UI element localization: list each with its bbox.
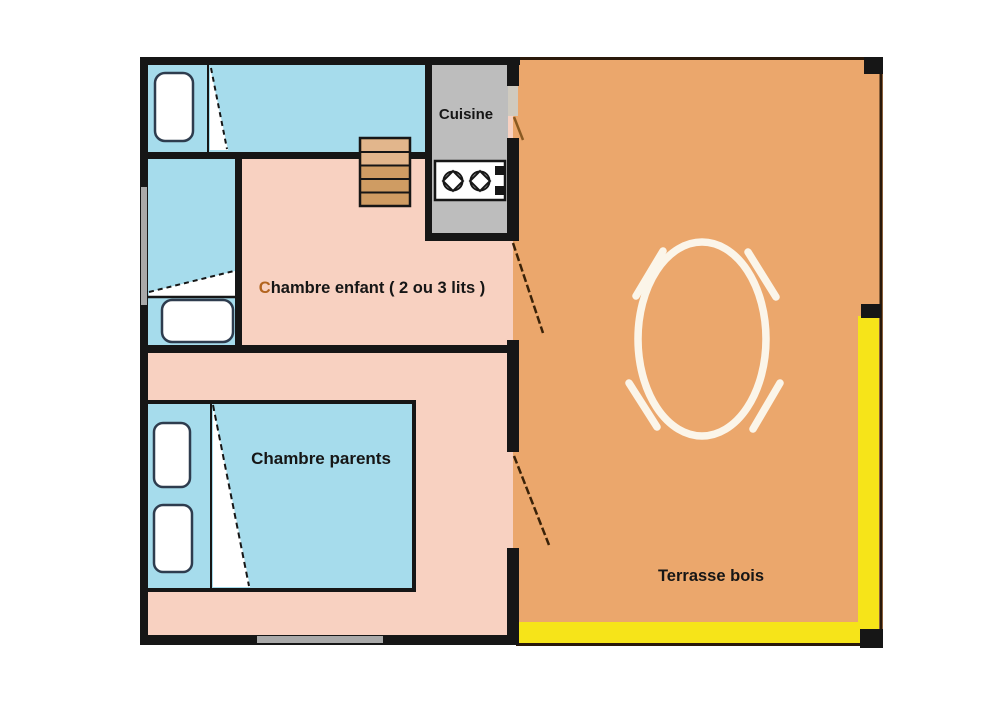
- label-parent-bedroom: Chambre parents: [251, 449, 391, 468]
- stove-knob-1: [495, 166, 504, 175]
- window-bottom-wall: [257, 636, 383, 643]
- label-terrace: Terrasse bois: [658, 567, 764, 585]
- terrace-post-bottom-right: [860, 629, 883, 648]
- wall-east-lower: [507, 548, 519, 645]
- parent-bed: [146, 402, 414, 590]
- parent-bed-pillow-1: [154, 423, 190, 487]
- terrace-yellow-edge-right: [858, 316, 879, 643]
- bed-mattress-left: [162, 300, 233, 342]
- label-child-bedroom-rest: hambre enfant ( 2 ou 3 lits ): [271, 279, 486, 297]
- kitchen-floor: [432, 65, 508, 237]
- terrace-yellow-edge-bottom: [519, 622, 878, 643]
- parent-bed-pillow-2: [154, 505, 192, 572]
- label-child-bedroom-initial: C: [259, 279, 271, 297]
- terrace-post-top-right: [864, 57, 883, 74]
- floor-plan-canvas: Cuisine Chambre enfant ( 2 ou 3 lits ) C…: [0, 0, 1000, 706]
- wall-left-nook-right: [235, 152, 242, 352]
- wall-east-kitchen-lower: [507, 138, 519, 241]
- terrace-floor: [513, 57, 883, 645]
- floor-plan-drawing: Cuisine Chambre enfant ( 2 ou 3 lits ) C…: [0, 0, 1000, 706]
- kitchen-door-gap: [508, 86, 518, 116]
- bed-mattress-top: [155, 73, 193, 141]
- window-left-wall: [141, 187, 147, 305]
- staircase: [360, 138, 410, 206]
- label-kitchen: Cuisine: [439, 106, 493, 123]
- wall-east-middle: [507, 340, 519, 452]
- stove-knob-2: [495, 186, 504, 195]
- kitchen: [432, 65, 508, 237]
- wall-top: [140, 57, 520, 65]
- label-child-bedroom: Chambre enfant ( 2 ou 3 lits ): [259, 279, 485, 297]
- wall-kitchen-bottom: [425, 233, 519, 241]
- wall-kitchen-left: [425, 57, 432, 241]
- terrace: [513, 57, 883, 648]
- terrace-post-mid-right: [861, 304, 881, 318]
- wall-east-kitchen-upper: [507, 57, 519, 86]
- wall-bedrooms-divider: [140, 345, 519, 353]
